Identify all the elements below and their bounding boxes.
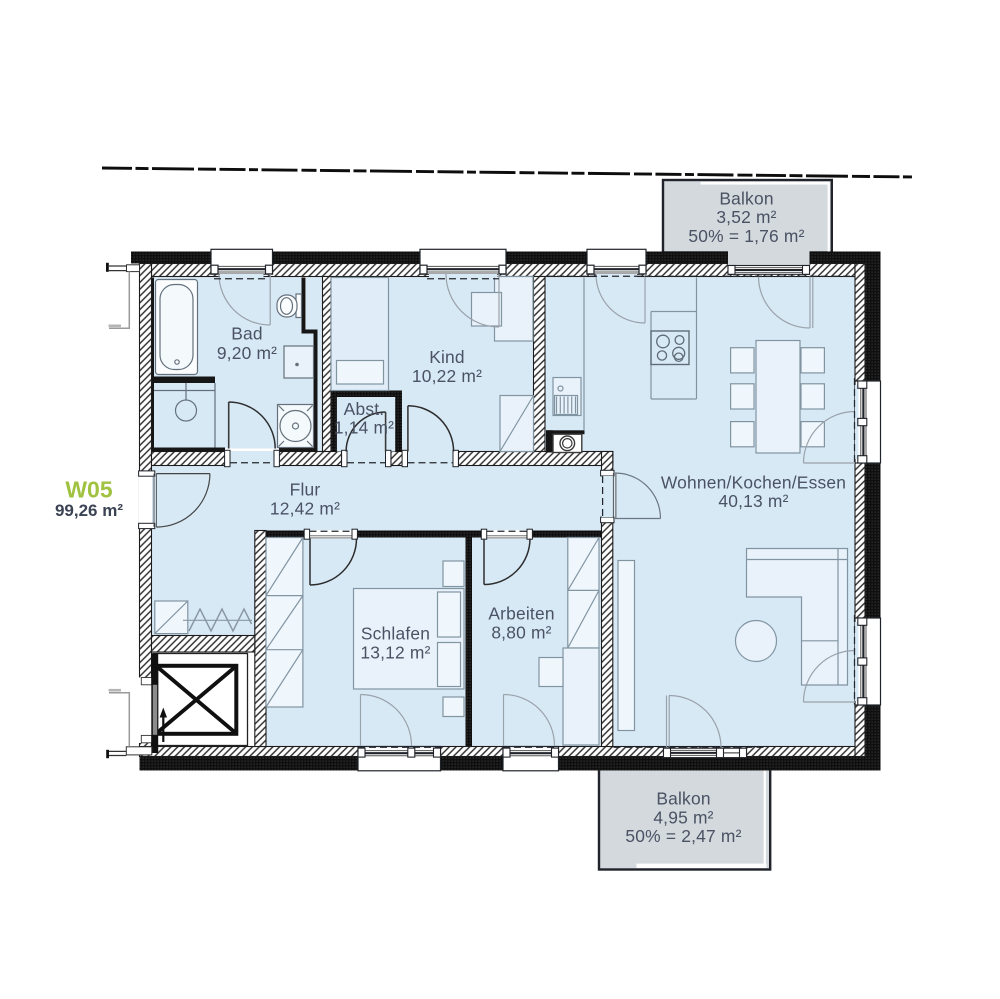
svg-text:9,20 m²: 9,20 m² [217, 343, 277, 363]
svg-text:8,80 m²: 8,80 m² [491, 623, 551, 643]
svg-text:40,13 m²: 40,13 m² [718, 491, 788, 511]
svg-text:12,42 m²: 12,42 m² [270, 499, 340, 519]
svg-text:Wohnen/Kochen/Essen: Wohnen/Kochen/Essen [661, 473, 846, 493]
svg-text:Bad: Bad [231, 324, 263, 344]
svg-text:10,22 m²: 10,22 m² [412, 366, 482, 386]
svg-text:Schlafen: Schlafen [361, 624, 430, 644]
svg-text:Balkon: Balkon [719, 188, 773, 208]
svg-text:50% = 1,76 m²: 50% = 1,76 m² [688, 226, 804, 246]
svg-text:Kind: Kind [429, 347, 465, 367]
svg-text:3,52 m²: 3,52 m² [716, 207, 776, 227]
svg-text:Balkon: Balkon [656, 789, 710, 809]
svg-text:99,26 m²: 99,26 m² [55, 501, 123, 520]
svg-text:50% = 2,47 m²: 50% = 2,47 m² [625, 826, 741, 846]
svg-text:Flur: Flur [290, 480, 321, 500]
svg-text:1,14 m²: 1,14 m² [334, 418, 394, 438]
svg-text:4,95 m²: 4,95 m² [653, 807, 713, 827]
svg-text:13,12 m²: 13,12 m² [360, 643, 430, 663]
svg-text:Abst.: Abst. [344, 399, 385, 419]
svg-text:Arbeiten: Arbeiten [488, 604, 554, 624]
svg-text:W05: W05 [65, 477, 113, 503]
